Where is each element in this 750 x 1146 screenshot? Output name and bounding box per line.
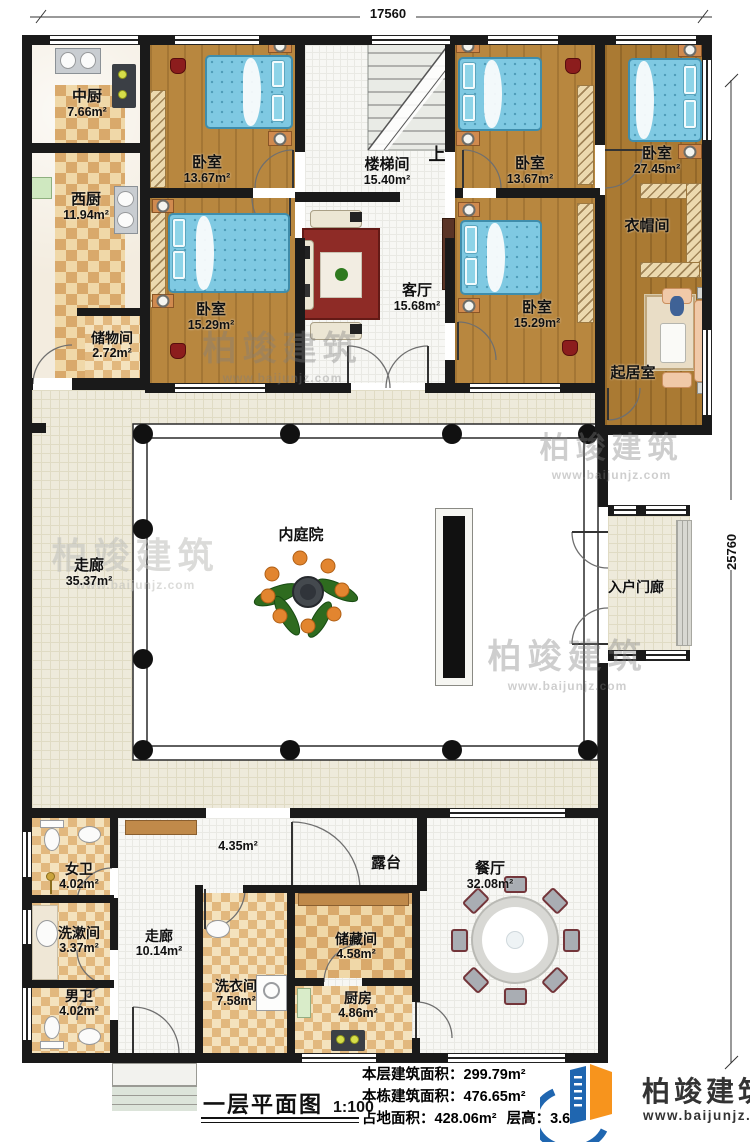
wall — [445, 360, 455, 383]
room-label-chuwujian: 储物间2.72m² — [91, 330, 133, 360]
sink-basin — [117, 212, 134, 228]
room-area: 15.29m² — [188, 318, 235, 332]
window — [614, 650, 636, 661]
dim-label-bg2 — [722, 500, 740, 570]
toilet-tank — [40, 820, 64, 828]
wall — [22, 808, 206, 818]
nightstand-icon — [268, 131, 292, 146]
window — [646, 650, 686, 661]
wall — [496, 188, 600, 198]
sink-icon — [36, 920, 58, 947]
room-name: 洗漱间 — [58, 925, 100, 941]
room-name: 客厅 — [394, 282, 441, 299]
column — [133, 424, 153, 444]
wall — [445, 238, 455, 323]
room-area: 4.58m² — [335, 947, 377, 961]
room-name: 卧室 — [514, 299, 561, 316]
wall — [417, 818, 427, 891]
room-label-cloakroom: 衣帽间 — [624, 217, 669, 234]
room-area: 10.14m² — [136, 944, 183, 958]
column — [578, 740, 598, 760]
room-name: 走廊 — [66, 557, 113, 574]
wall — [295, 238, 305, 383]
stat-value: 476.65m² — [464, 1089, 526, 1105]
room-label-bath-men: 男卫4.02m² — [59, 988, 99, 1018]
room-area: 2.72m² — [91, 346, 133, 360]
room-label-corridor-small: 走廊10.14m² — [136, 928, 183, 958]
company-logo: 柏竣建筑 www.baijunjz.com — [540, 1058, 750, 1144]
closet-icon — [640, 262, 700, 278]
room-area: 13.67m² — [507, 172, 554, 186]
window — [614, 505, 636, 516]
room-area: 15.68m² — [394, 299, 441, 313]
chair-icon — [562, 340, 578, 356]
wardrobe-icon — [577, 85, 594, 185]
pillow-icon — [173, 219, 185, 247]
wall — [290, 808, 450, 818]
courtyard-screen-wall-core — [443, 516, 465, 678]
cushion-icon — [350, 324, 362, 334]
toilet-icon — [44, 1016, 60, 1039]
counter-board — [30, 177, 52, 199]
pillow-icon — [173, 251, 185, 279]
wall — [412, 1038, 420, 1053]
toilet-icon — [44, 828, 60, 851]
dimension-top-label: 17560 — [370, 6, 406, 21]
wall — [110, 898, 118, 950]
wall — [445, 45, 455, 152]
room-area: 3.37m² — [58, 941, 100, 955]
table-center — [506, 931, 524, 949]
window — [175, 35, 259, 45]
wall — [295, 383, 351, 393]
logo-icon — [540, 1058, 640, 1142]
window — [616, 35, 696, 45]
window — [22, 832, 32, 877]
room-area: 15.29m² — [514, 316, 561, 330]
stat-value: 428.06m² — [435, 1111, 497, 1127]
wall — [565, 808, 608, 818]
room-label-storeroom: 储藏间4.58m² — [335, 931, 377, 961]
nightstand-icon — [456, 131, 480, 146]
room-name: 储物间 — [91, 330, 133, 346]
sink-icon — [78, 1028, 101, 1045]
window — [302, 1053, 376, 1063]
sink-icon — [78, 826, 101, 843]
pillow-icon — [465, 226, 477, 253]
logo-text: 柏竣建筑 — [642, 1070, 750, 1110]
room-label-hall-small: 4.35m² — [218, 839, 258, 853]
room-name: 衣帽间 — [624, 217, 669, 234]
up-label: 上 — [429, 145, 446, 165]
room-label-living: 客厅15.68m² — [394, 282, 441, 314]
room-label-corridor-main: 走廊35.37m² — [66, 557, 113, 589]
room-label-terrace: 露台 — [371, 854, 401, 871]
room-name: 楼梯间 — [364, 156, 411, 173]
room-name: 女卫 — [59, 861, 99, 877]
shelf-icon — [298, 893, 409, 906]
stat-label: 本层建筑面积： — [362, 1067, 464, 1083]
room-area: 4.35m² — [218, 839, 258, 853]
bed-icon — [168, 213, 290, 293]
pillow-icon — [463, 95, 475, 121]
toilet-tank — [40, 1041, 64, 1049]
coffee-table-icon — [660, 323, 686, 363]
room-area: 4.86m² — [338, 1006, 378, 1020]
plant-icon — [335, 268, 348, 281]
room-label-kitchen: 厨房4.86m² — [338, 990, 378, 1020]
room-name: 卧室 — [634, 145, 681, 162]
person-figure — [670, 296, 684, 316]
wall — [110, 1020, 118, 1053]
room-label-zhongchu: 中厨7.66m² — [67, 88, 107, 120]
wall — [595, 425, 712, 435]
room-area: 7.58m² — [215, 994, 257, 1008]
wall — [295, 978, 324, 986]
window — [22, 910, 32, 944]
room-label-washroom: 洗漱间3.37m² — [58, 925, 100, 955]
porch-steps — [676, 520, 692, 646]
floor-plan: 17560 25760 — [0, 0, 750, 1146]
wall — [32, 423, 46, 433]
wall — [140, 45, 150, 378]
room-label-bedroom-ml: 卧室15.29m² — [188, 301, 235, 333]
room-name: 露台 — [371, 854, 401, 871]
wall — [425, 383, 455, 393]
floor-drain-handle — [50, 880, 52, 894]
wall — [455, 188, 463, 198]
wall — [295, 45, 305, 152]
pillow-icon — [684, 66, 696, 94]
window — [372, 35, 450, 45]
room-label-courtyard: 内庭院 — [278, 526, 323, 543]
wardrobe-icon — [150, 90, 166, 188]
title-underline — [201, 1117, 359, 1123]
room-area: 35.37m² — [66, 574, 113, 588]
room-area: 4.02m² — [59, 877, 99, 891]
nightstand-icon — [152, 294, 174, 308]
stat-label: 占地面积： — [362, 1111, 435, 1127]
room-name: 走廊 — [136, 928, 183, 944]
column — [133, 740, 153, 760]
wall — [295, 885, 415, 893]
room-label-entry-porch: 入户门廊 — [608, 579, 664, 595]
sink-basin — [80, 52, 96, 69]
room-label-stairwell: 楼梯间15.40m² — [364, 156, 411, 188]
entry-steps-treads — [112, 1085, 197, 1111]
burner-icon — [118, 70, 127, 79]
room-label-bedroom-tr: 卧室13.67m² — [507, 155, 554, 187]
room-name: 卧室 — [188, 301, 235, 318]
window — [488, 35, 558, 45]
room-name: 储藏间 — [335, 931, 377, 947]
room-name: 中厨 — [67, 88, 107, 105]
armchair-icon — [662, 372, 692, 388]
wall — [598, 435, 608, 507]
room-label-bedroom-master: 卧室27.45m² — [634, 145, 681, 177]
room-name: 内庭院 — [278, 526, 323, 543]
room-area: 11.94m² — [63, 208, 109, 222]
burner-icon — [350, 1035, 359, 1044]
nightstand-icon — [152, 199, 174, 213]
wall — [287, 885, 295, 1053]
sink-basin — [117, 191, 134, 207]
window — [450, 808, 565, 818]
drawing-title: 一层平面图 1:100 — [203, 1087, 374, 1119]
stat-value: 299.79m² — [464, 1067, 526, 1083]
wall — [72, 378, 150, 390]
logo-building-blue — [570, 1066, 586, 1124]
chair-icon — [170, 343, 186, 359]
room-area: 32.08m² — [467, 877, 514, 891]
room-area: 15.40m² — [364, 173, 411, 187]
walkway-floor — [32, 390, 598, 808]
wall — [110, 818, 118, 868]
column — [280, 424, 300, 444]
wall — [595, 45, 605, 145]
room-name: 洗衣间 — [215, 978, 257, 994]
room-label-sitting: 起居室 — [610, 364, 655, 381]
wall — [595, 195, 605, 383]
room-label-xichu: 西厨11.94m² — [63, 191, 109, 223]
wall — [243, 885, 290, 893]
wardrobe-icon — [577, 203, 594, 323]
column — [280, 740, 300, 760]
window — [702, 330, 712, 415]
room-name: 卧室 — [184, 154, 231, 171]
laundry-floor — [203, 893, 287, 1053]
drawing-title-text: 一层平面图 — [203, 1087, 323, 1119]
dining-chair-icon — [451, 929, 468, 952]
window — [470, 383, 560, 393]
room-area: 4.02m² — [59, 1004, 99, 1018]
room-name: 起居室 — [610, 364, 655, 381]
pillow-icon — [272, 95, 284, 121]
cabinet-icon — [125, 820, 197, 835]
sink-basin — [60, 52, 76, 69]
column — [442, 424, 462, 444]
wall — [150, 188, 253, 198]
burner-icon — [118, 90, 127, 99]
basin-icon — [206, 920, 230, 938]
nightstand-icon — [458, 298, 480, 313]
wall — [22, 35, 32, 1063]
wall — [77, 308, 145, 316]
room-area: 27.45m² — [634, 162, 681, 176]
pillow-icon — [272, 61, 284, 87]
room-label-bedroom-tl: 卧室13.67m² — [184, 154, 231, 186]
cushion-icon — [350, 212, 362, 222]
pillow-icon — [684, 100, 696, 128]
column — [133, 649, 153, 669]
dining-chair-icon — [563, 929, 580, 952]
column — [442, 740, 462, 760]
room-name: 入户门廊 — [608, 579, 664, 595]
room-name: 卧室 — [507, 155, 554, 172]
window — [22, 988, 32, 1040]
wall — [598, 663, 608, 1063]
stat-line: 本栋建筑面积：476.65m² — [362, 1086, 570, 1108]
stat-line: 占地面积：428.06m²层高：3.6 — [362, 1108, 570, 1130]
pillow-icon — [465, 258, 477, 285]
dining-chair-icon — [504, 988, 527, 1005]
washer-door — [263, 982, 280, 999]
room-name: 西厨 — [63, 191, 109, 208]
room-area: 13.67m² — [184, 171, 231, 185]
room-name: 餐厅 — [467, 860, 514, 877]
area-stats: 本层建筑面积：299.79m² 本栋建筑面积：476.65m² 占地面积：428… — [362, 1064, 570, 1130]
room-area: 7.66m² — [67, 105, 107, 119]
window — [175, 383, 265, 393]
wall — [195, 885, 203, 1053]
fridge-icon — [297, 988, 311, 1018]
stat-line: 本层建筑面积：299.79m² — [362, 1064, 570, 1086]
wall — [295, 192, 400, 202]
burner-icon — [336, 1035, 345, 1044]
room-label-bath-women: 女卫4.02m² — [59, 861, 99, 891]
logo-building-orange — [590, 1064, 612, 1120]
dimension-right-label: 25760 — [724, 534, 739, 570]
logo-url: www.baijunjz.com — [643, 1108, 750, 1123]
room-name: 厨房 — [338, 990, 378, 1006]
wall — [32, 895, 114, 903]
nightstand-icon — [678, 144, 702, 159]
room-label-laundry: 洗衣间7.58m² — [215, 978, 257, 1008]
wall — [22, 378, 33, 390]
wall — [362, 978, 415, 986]
wall — [595, 383, 605, 425]
chair-icon — [170, 58, 186, 74]
column — [133, 519, 153, 539]
window — [702, 60, 712, 140]
room-label-bedroom-mr: 卧室15.29m² — [514, 299, 561, 331]
window — [646, 505, 686, 516]
wall — [412, 885, 420, 1002]
nightstand-icon — [458, 202, 480, 217]
room-name: 男卫 — [59, 988, 99, 1004]
chair-icon — [565, 58, 581, 74]
pillow-icon — [463, 63, 475, 89]
stairs-direction-label: 上 — [429, 145, 446, 165]
stat-label: 本栋建筑面积： — [362, 1089, 464, 1105]
wall — [32, 143, 140, 153]
room-label-dining: 餐厅32.08m² — [467, 860, 514, 892]
window — [50, 35, 138, 45]
dim-label-bg — [360, 5, 416, 21]
